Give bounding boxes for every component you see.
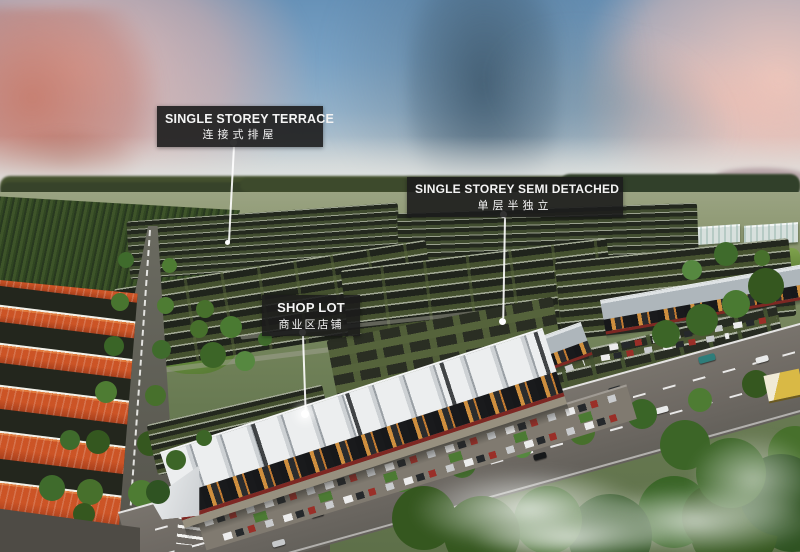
callout-shop-lot-title: SHOP LOT [270,300,352,317]
tree-cluster [60,430,80,450]
callout-semi-detached-title: SINGLE STOREY SEMI DETACHED [415,182,615,198]
callout-semi-detached: SINGLE STOREY SEMI DETACHED 单层半独立 [407,177,623,217]
marker-dot [499,318,506,325]
marker-dot-glow [301,410,309,418]
marker-dot [225,240,230,245]
callout-shop-lot: SHOP LOT 商业区店铺 [262,295,360,336]
tree-cluster [162,258,177,273]
callout-terrace: SINGLE STOREY TERRACE 连接式排屋 [157,106,323,147]
bus [698,353,716,364]
car [533,452,547,461]
tree-cluster [196,300,214,318]
car [755,355,769,364]
tree-cluster [118,252,134,268]
mist [470,516,670,552]
aerial-rendering: SINGLE STOREY TERRACE 连接式排屋 SINGLE STORE… [0,0,800,552]
tree-cluster [196,430,212,446]
car [272,539,286,548]
callout-semi-detached-subtitle: 单层半独立 [415,199,615,213]
callout-terrace-subtitle: 连接式排屋 [165,128,315,142]
callout-shop-lot-subtitle: 商业区店铺 [270,318,352,332]
roadside-tree-belt [652,320,680,348]
callout-terrace-title: SINGLE STOREY TERRACE [165,111,315,127]
